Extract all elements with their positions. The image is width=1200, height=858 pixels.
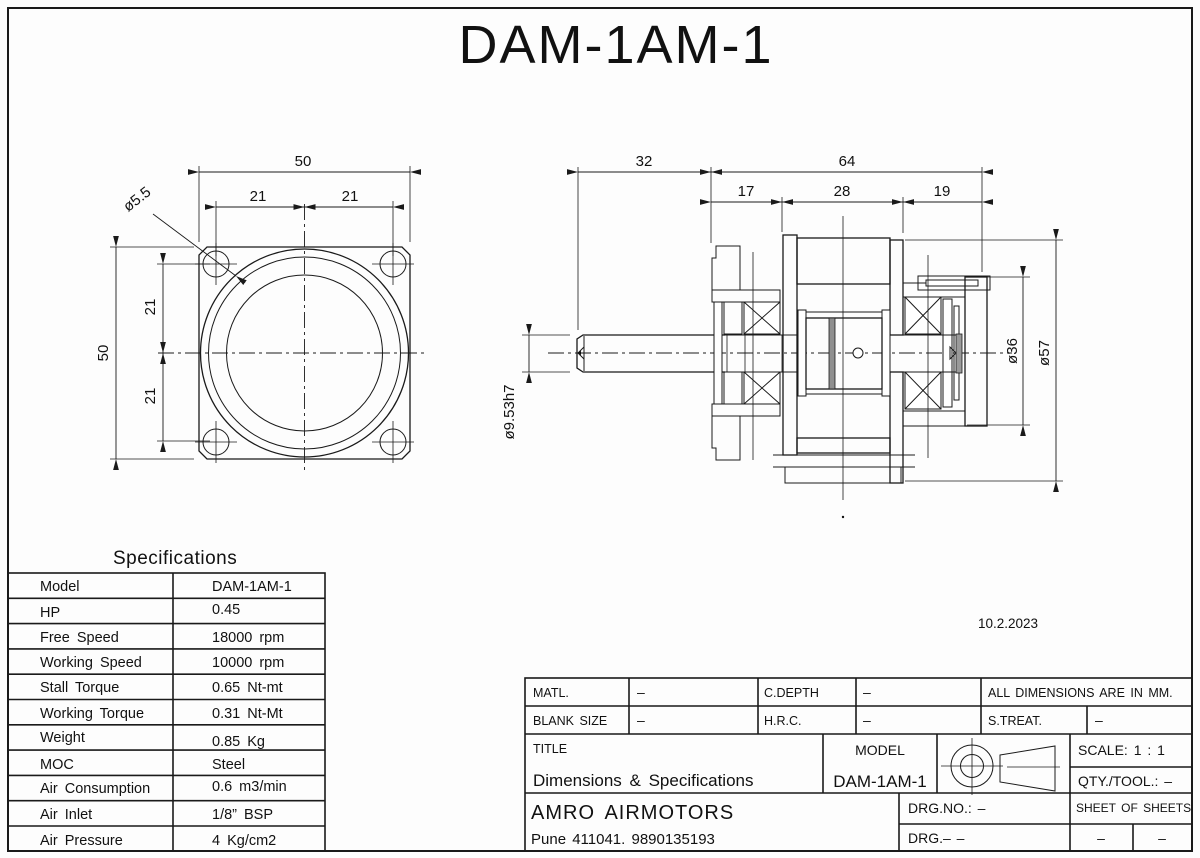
- spec-row-model: ModelDAM-1AM-1: [40, 579, 292, 595]
- engineering-drawing-sheet: DAM-1AM-1 10.2.2023 50 21 21 50: [0, 0, 1200, 858]
- sheet-dash-right: –: [1158, 830, 1166, 846]
- rear-end-cap: [965, 277, 987, 426]
- svg-text:Weight: Weight: [40, 730, 85, 746]
- spec-row-weight: Weight0.85 Kg: [40, 730, 265, 750]
- qty-tool-text: QTY./TOOL.: –: [1078, 773, 1172, 789]
- svg-text:DAM-1AM-1: DAM-1AM-1: [212, 579, 292, 595]
- dim-rear-dia: ø36: [1004, 338, 1021, 364]
- drg-no-text: DRG.NO.: –: [908, 800, 986, 816]
- hrc-label: H.R.C.: [764, 714, 802, 728]
- rotor-pin-hole: [853, 348, 863, 358]
- specifications-table: Specifications ModelDAM-1AM-1 HP0.45 Fre…: [8, 548, 325, 851]
- company-address: Pune 411041. 9890135193: [531, 831, 715, 848]
- vane: [829, 318, 835, 389]
- dim-bolt-top: 21: [142, 299, 159, 316]
- rotor: [806, 318, 882, 389]
- svg-text:Air Inlet: Air Inlet: [40, 807, 92, 823]
- specifications-heading: Specifications: [113, 548, 237, 569]
- svg-text:Free Speed: Free Speed: [40, 630, 119, 646]
- dim-shaft-dia: ø9.53h7: [501, 384, 518, 439]
- svg-text:Steel: Steel: [212, 757, 245, 773]
- front-view: 50 21 21 50 21 21 ø5.5: [95, 153, 428, 474]
- dim-bolt-hole-dia: ø5.5: [120, 184, 154, 216]
- section-view: 32 64 17 28 19 ø9.53h7 ø36 ø57: [501, 153, 1063, 518]
- svg-text:18000 rpm: 18000 rpm: [212, 630, 284, 646]
- drg-text: DRG.– –: [908, 830, 965, 846]
- sheet-text: SHEET OF SHEETS: [1076, 801, 1191, 815]
- svg-text:0.45: 0.45: [212, 602, 240, 618]
- scale-text: SCALE: 1 : 1: [1078, 742, 1165, 758]
- rear-bearing-bottom: [905, 372, 941, 409]
- svg-text:0.65 Nt-mt: 0.65 Nt-mt: [212, 680, 283, 696]
- spec-row-hp: HP0.45: [40, 602, 240, 621]
- svg-text:Model: Model: [40, 579, 80, 595]
- dim-bolt-right: 21: [342, 188, 359, 205]
- spec-row-air-consumption: Air Consumption0.6 m3/min: [40, 779, 287, 797]
- all-dims-note: ALL DIMENSIONS ARE IN MM.: [988, 686, 1173, 700]
- rear-bearing-section: [903, 276, 990, 426]
- spec-row-free-speed: Free Speed18000 rpm: [40, 630, 284, 646]
- svg-text:0.31 Nt-Mt: 0.31 Nt-Mt: [212, 706, 283, 722]
- model-value: DAM-1AM-1: [833, 772, 927, 791]
- rear-bearing-top: [905, 297, 941, 334]
- page-title: DAM-1AM-1: [458, 15, 773, 75]
- sheet-dash-left: –: [1097, 830, 1105, 846]
- spec-row-working-torque: Working Torque0.31 Nt-Mt: [40, 706, 283, 722]
- matl-value: –: [637, 684, 645, 700]
- dim-body-dia: ø57: [1036, 340, 1053, 366]
- svg-text:Stall Torque: Stall Torque: [40, 680, 119, 696]
- svg-text:0.6 m3/min: 0.6 m3/min: [212, 779, 287, 795]
- blank-size-value: –: [637, 712, 645, 728]
- hrc-value: –: [863, 712, 871, 728]
- spline-top: [724, 302, 742, 334]
- motor-body: [773, 238, 915, 483]
- svg-text:1/8” BSP: 1/8” BSP: [212, 807, 273, 823]
- svg-text:10000 rpm: 10000 rpm: [212, 655, 284, 671]
- output-shaft: [577, 335, 806, 372]
- dim-body-length: 64: [839, 153, 856, 170]
- spec-row-stall-torque: Stall Torque0.65 Nt-mt: [40, 680, 283, 696]
- svg-text:MOC: MOC: [40, 757, 74, 773]
- svg-text:Air Consumption: Air Consumption: [40, 781, 150, 797]
- front-bearing-top: [744, 302, 780, 334]
- dim-front-height: 50: [95, 345, 112, 362]
- svg-text:Working Torque: Working Torque: [40, 706, 144, 722]
- dim-bolt-bottom: 21: [142, 388, 159, 405]
- dim-rear-section: 19: [934, 183, 951, 200]
- svg-text:Air Pressure: Air Pressure: [40, 833, 123, 849]
- title-label: TITLE: [533, 742, 567, 756]
- svg-text:0.85 Kg: 0.85 Kg: [212, 734, 265, 750]
- dim-bolt-left: 21: [250, 188, 267, 205]
- company-name: AMRO AIRMOTORS: [531, 802, 734, 824]
- svg-text:4 Kg/cm2: 4 Kg/cm2: [212, 833, 276, 849]
- spline-bottom: [724, 372, 742, 404]
- streat-value: –: [1095, 712, 1103, 728]
- spec-row-moc: MOCSteel: [40, 757, 245, 773]
- blank-size-label: BLANK SIZE: [533, 714, 607, 728]
- dim-front-section: 17: [738, 183, 755, 200]
- dim-front-width: 50: [295, 153, 312, 170]
- spec-row-air-pressure: Air Pressure4 Kg/cm2: [40, 833, 276, 849]
- drawing-date: 10.2.2023: [978, 616, 1038, 631]
- projection-symbol-icon: [941, 738, 1060, 795]
- spec-row-working-speed: Working Speed10000 rpm: [40, 655, 284, 671]
- model-label: MODEL: [855, 742, 905, 758]
- dim-middle-section: 28: [834, 183, 851, 200]
- front-bearing-bottom: [744, 372, 780, 404]
- drawing-canvas: DAM-1AM-1 10.2.2023 50 21 21 50: [0, 0, 1200, 858]
- svg-text:HP: HP: [40, 605, 60, 621]
- cdepth-value: –: [863, 684, 871, 700]
- mounting-flange: [783, 235, 797, 455]
- drawing-title: Dimensions & Specifications: [533, 771, 753, 790]
- cdepth-label: C.DEPTH: [764, 686, 819, 700]
- spec-row-air-inlet: Air Inlet1/8” BSP: [40, 807, 273, 823]
- streat-label: S.TREAT.: [988, 714, 1042, 728]
- svg-text:Working Speed: Working Speed: [40, 655, 142, 671]
- matl-label: MATL.: [533, 686, 569, 700]
- dim-shaft-length: 32: [636, 153, 653, 170]
- title-block: MATL. – C.DEPTH – ALL DIMENSIONS ARE IN …: [525, 678, 1192, 851]
